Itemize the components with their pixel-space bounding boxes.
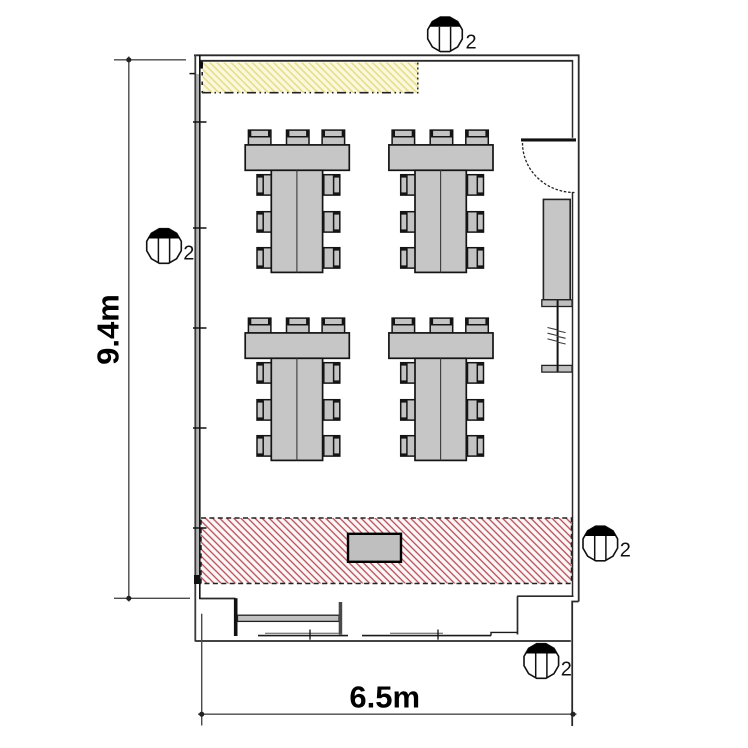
svg-text:9.4m: 9.4m (91, 294, 126, 365)
svg-text:2: 2 (561, 659, 572, 681)
svg-text:2: 2 (183, 243, 194, 265)
svg-text:2: 2 (620, 540, 631, 562)
svg-text:6.5m: 6.5m (349, 680, 420, 715)
svg-text:2: 2 (466, 32, 477, 54)
